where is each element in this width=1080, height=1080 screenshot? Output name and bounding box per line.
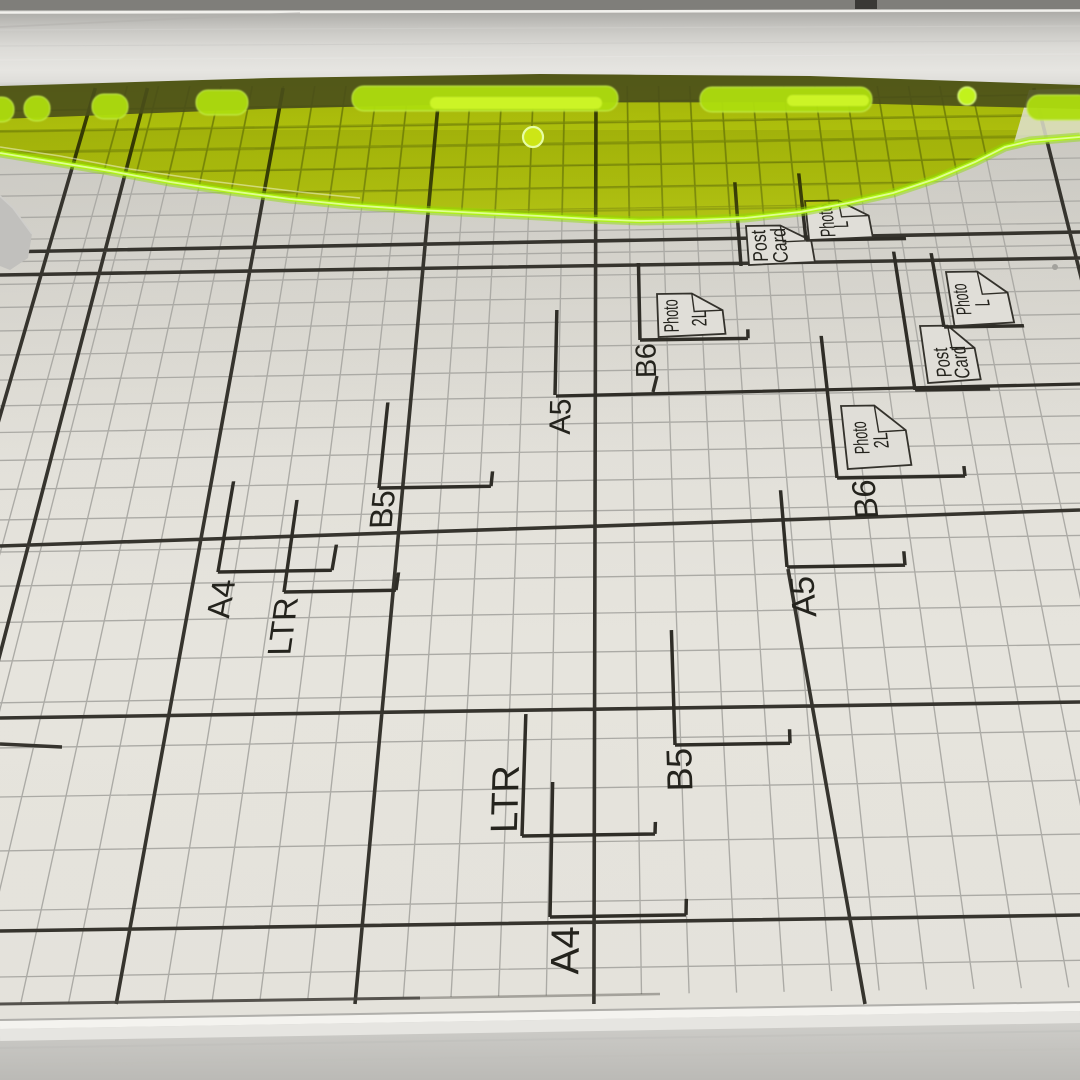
- svg-text:Card: Card: [767, 228, 793, 263]
- svg-text:L: L: [830, 221, 854, 228]
- svg-text:B5: B5: [658, 748, 700, 792]
- svg-text:A4: A4: [199, 580, 243, 620]
- svg-text:B6: B6: [630, 343, 663, 378]
- svg-text:B6: B6: [844, 480, 885, 520]
- svg-text:B5: B5: [362, 491, 402, 529]
- svg-text:2L: 2L: [688, 310, 712, 326]
- svg-text:A4: A4: [543, 926, 588, 975]
- svg-text:LTR: LTR: [484, 765, 528, 833]
- svg-text:A5: A5: [783, 576, 824, 617]
- svg-text:A5: A5: [544, 399, 578, 435]
- svg-text:Photo: Photo: [659, 299, 684, 332]
- svg-text:L: L: [971, 299, 995, 306]
- svg-text:2L: 2L: [869, 432, 894, 448]
